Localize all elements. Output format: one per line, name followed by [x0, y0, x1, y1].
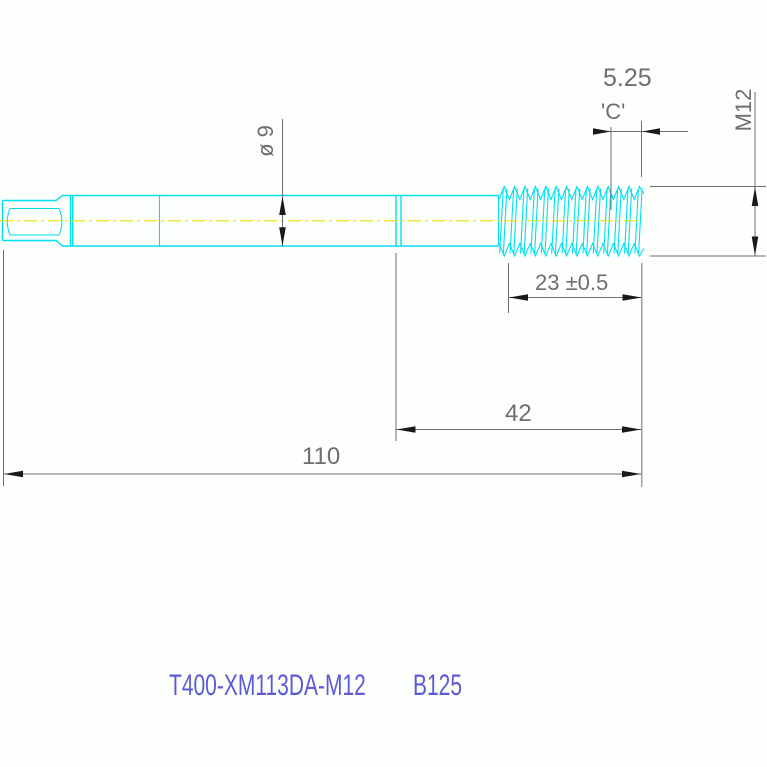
- chamfer-length-value: 5.25: [603, 66, 652, 91]
- cad-drawing-viewport[interactable]: 5.25 'C' M12 ø 9 23 ±0.5 42 110 T400-XM1…: [0, 0, 767, 767]
- part-number-text: T400-XM113DA-M12: [169, 671, 366, 701]
- batch-code-text: B125: [413, 671, 462, 701]
- shank-diameter-value: ø 9: [255, 101, 277, 181]
- dimension-thread-length: [509, 263, 643, 487]
- thread-length-value: 23 ±0.5: [535, 272, 608, 294]
- overall-length-value: 110: [302, 445, 340, 469]
- tap-tool-drawing: [0, 0, 767, 767]
- chamfer-ref-label: 'C': [601, 101, 625, 123]
- dimension-shank-diameter: [279, 119, 286, 246]
- front-length-value: 42: [505, 402, 532, 426]
- thread-spec-label: M12: [733, 70, 755, 150]
